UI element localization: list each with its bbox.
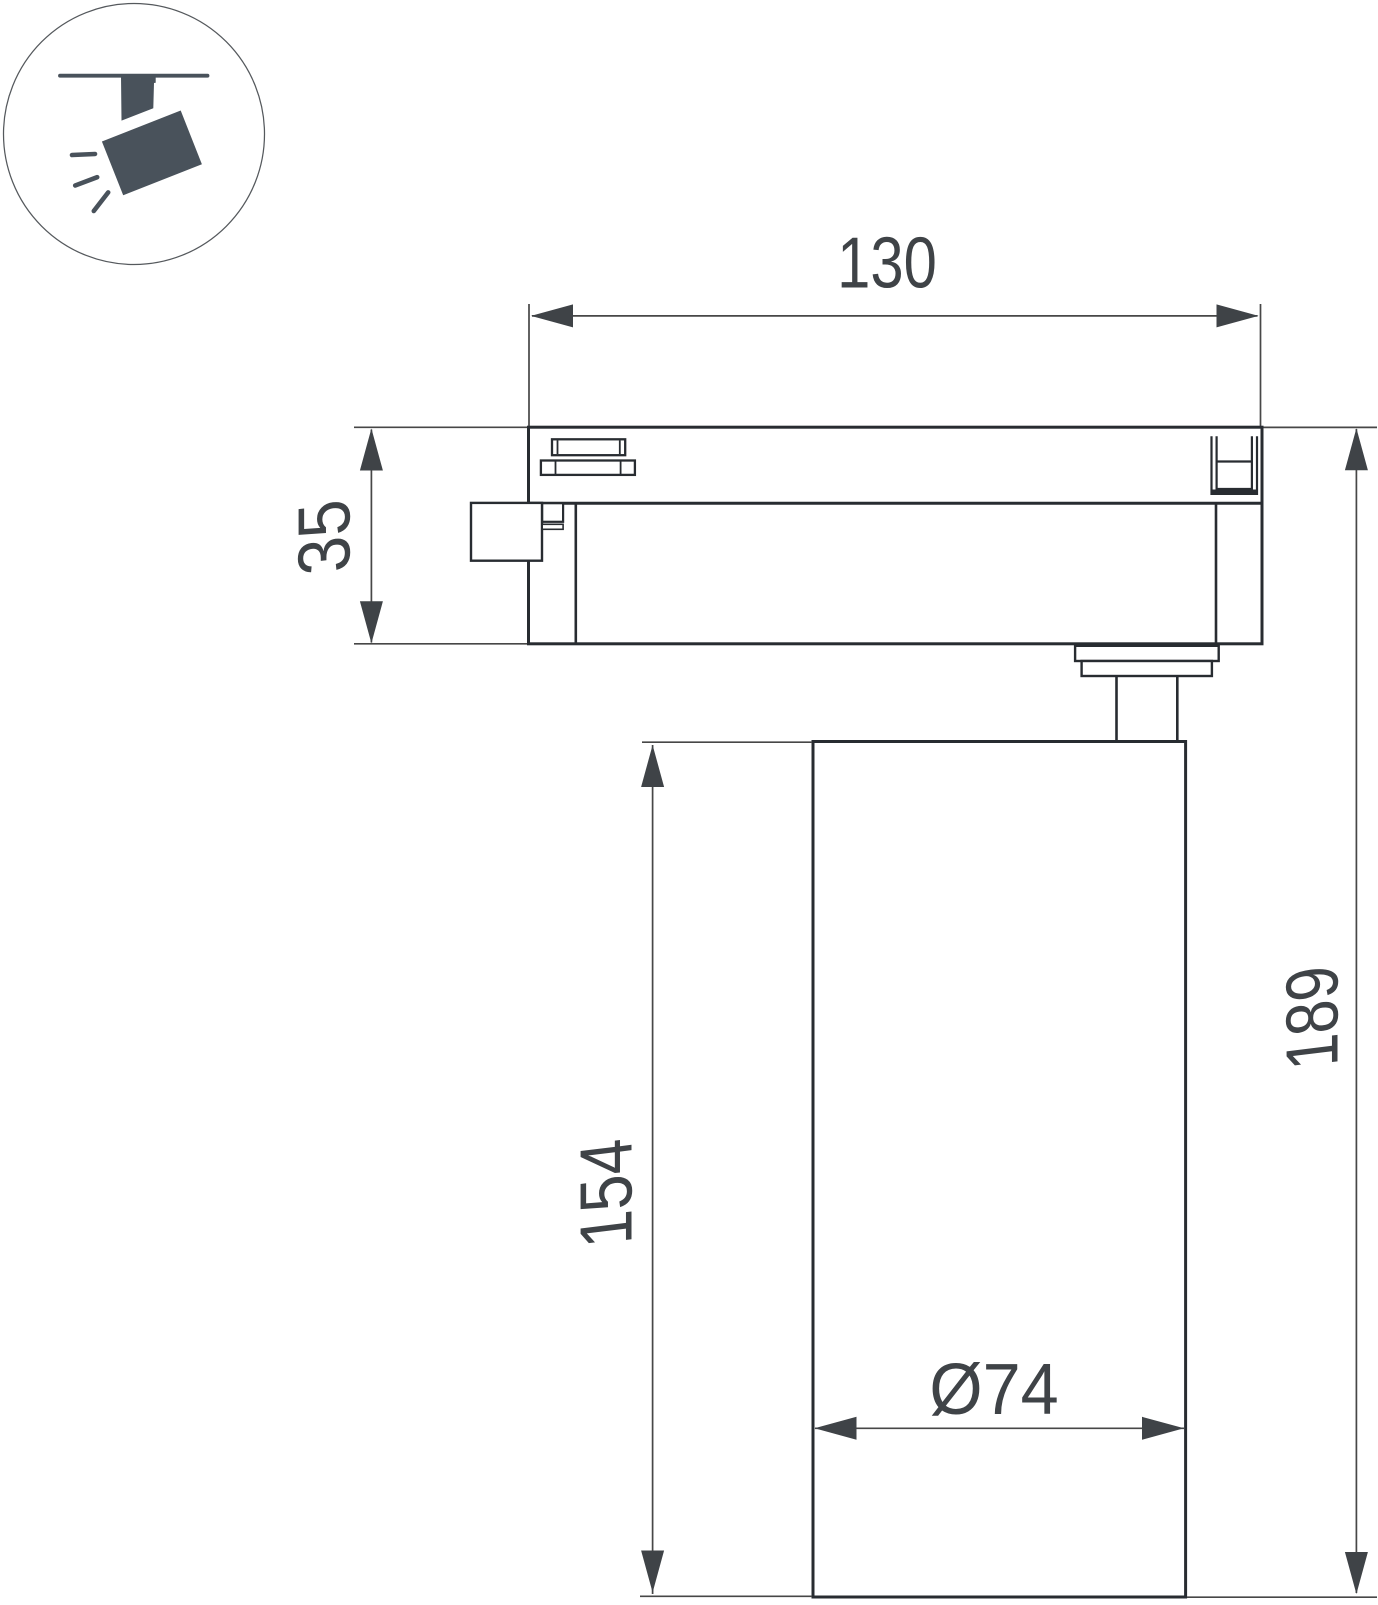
svg-text:189: 189: [1271, 962, 1353, 1075]
svg-text:154: 154: [565, 1135, 648, 1253]
svg-text:35: 35: [282, 496, 365, 579]
svg-text:130: 130: [837, 223, 937, 304]
svg-text:Ø74: Ø74: [929, 1349, 1058, 1430]
